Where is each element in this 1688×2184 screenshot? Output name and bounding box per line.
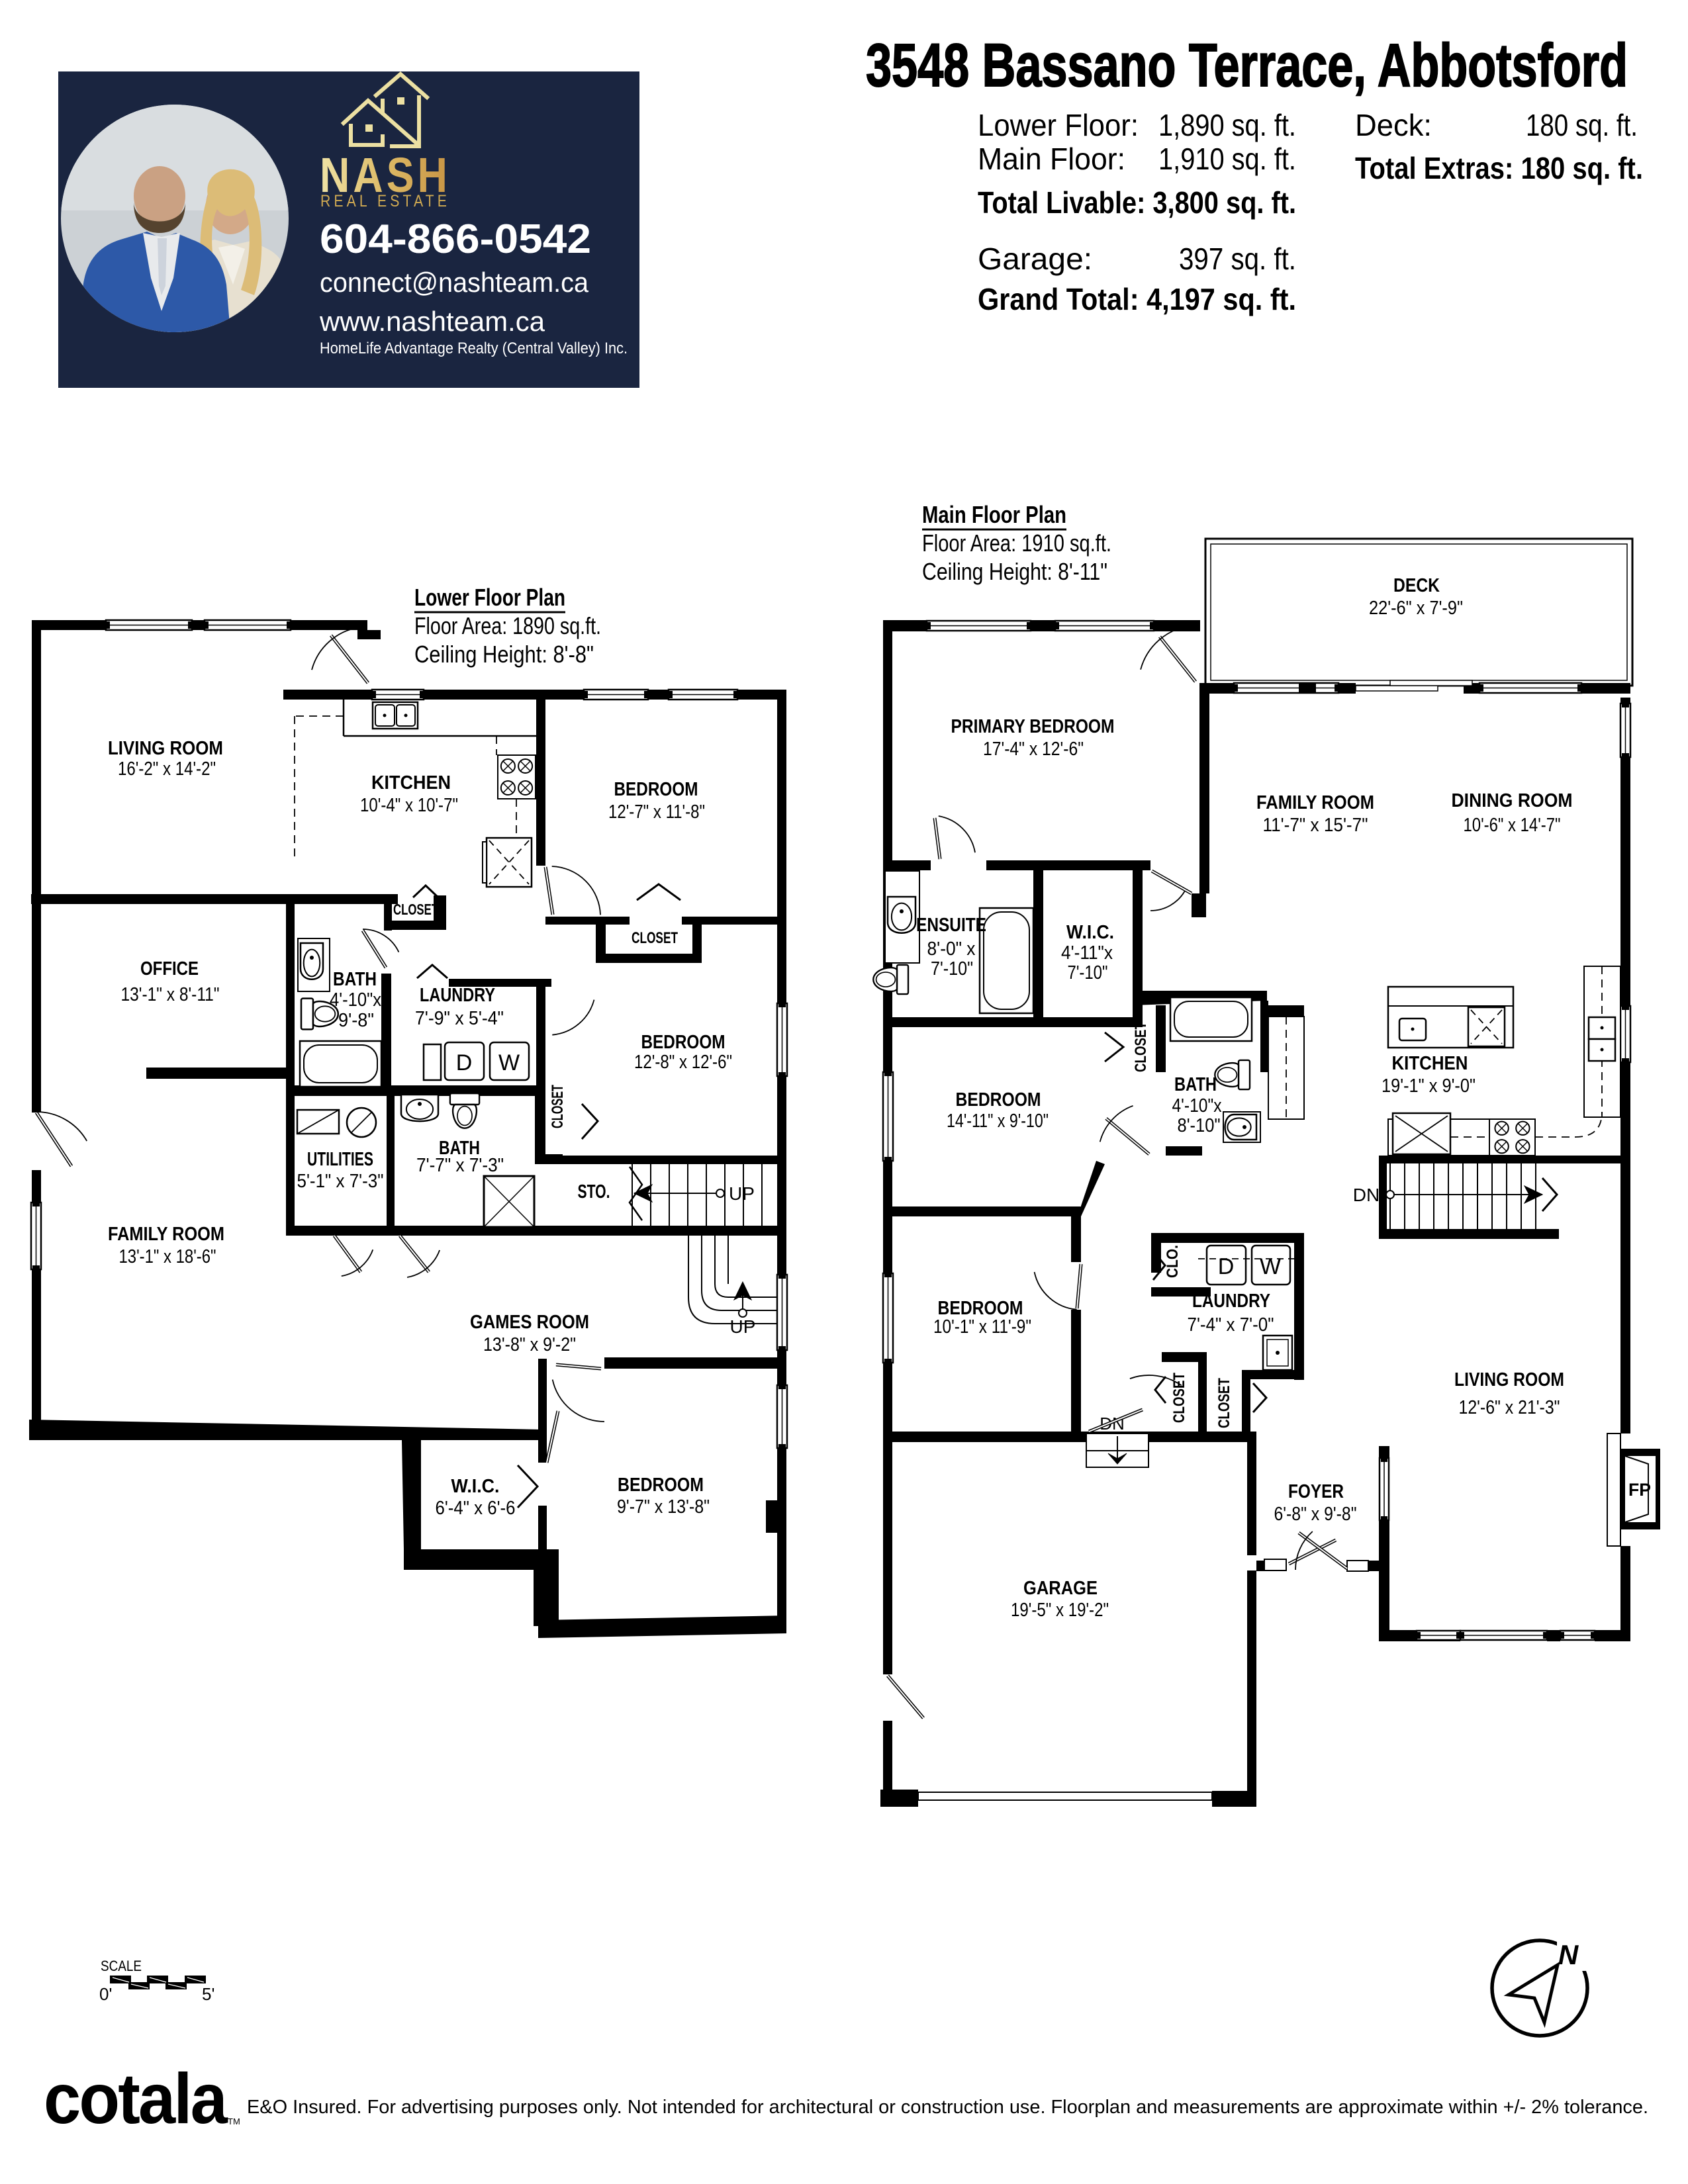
svg-text:Total Extras: 180 sq. ft.: Total Extras: 180 sq. ft. [1355,151,1643,185]
svg-text:7'-9" x 5'-4": 7'-9" x 5'-4" [415,1008,504,1029]
svg-text:FAMILY ROOM: FAMILY ROOM [1256,792,1374,813]
svg-text:Ceiling Height: 8'-11": Ceiling Height: 8'-11" [922,558,1107,585]
svg-text:REAL ESTATE: REAL ESTATE [320,192,450,210]
svg-text:ENSUITE: ENSUITE [916,915,986,936]
svg-text:9'-8": 9'-8" [338,1010,374,1031]
svg-text:Grand Total: 4,197 sq. ft.: Grand Total: 4,197 sq. ft. [978,282,1296,316]
svg-text:6'-4" x 6'-6: 6'-4" x 6'-6 [436,1498,516,1519]
svg-text:OFFICE: OFFICE [140,958,199,979]
svg-text:CLO.: CLO. [1164,1245,1182,1278]
svg-text:13'-8" x 9'-2": 13'-8" x 9'-2" [483,1334,576,1355]
svg-text:CLOSET: CLOSET [1215,1378,1233,1428]
svg-text:BEDROOM: BEDROOM [641,1032,726,1053]
svg-text:4'-11"x: 4'-11"x [1061,942,1113,964]
svg-text:GARAGE: GARAGE [1023,1578,1098,1599]
svg-text:CLOSET: CLOSET [393,901,438,918]
svg-text:8'-0" x: 8'-0" x [927,938,976,960]
svg-text:5': 5' [202,1984,214,2004]
svg-text:16'-2" x 14'-2": 16'-2" x 14'-2" [118,758,216,780]
svg-text:Lower Floor Plan: Lower Floor Plan [414,584,565,611]
svg-text:6'-8" x 9'-8": 6'-8" x 9'-8" [1274,1504,1357,1525]
svg-text:LIVING ROOM: LIVING ROOM [1454,1369,1564,1390]
svg-text:Main Floor:: Main Floor: [978,142,1125,176]
svg-text:connect@nashteam.ca: connect@nashteam.ca [320,267,589,298]
svg-text:W: W [498,1050,520,1075]
svg-text:BEDROOM: BEDROOM [618,1475,704,1496]
svg-text:1,910 sq. ft.: 1,910 sq. ft. [1158,142,1296,176]
svg-text:FOYER: FOYER [1288,1481,1344,1502]
svg-text:FP: FP [1628,1480,1651,1500]
svg-text:TM: TM [228,2116,240,2126]
svg-text:7'-4" x 7'-0": 7'-4" x 7'-0" [1188,1314,1274,1336]
svg-text:8'-10": 8'-10" [1178,1115,1221,1136]
svg-text:5'-1" x 7'-3": 5'-1" x 7'-3" [297,1171,384,1192]
svg-text:CLOSET: CLOSET [1132,1022,1150,1072]
svg-text:12'-6" x 21'-3": 12'-6" x 21'-3" [1459,1397,1560,1418]
svg-text:W.I.C.: W.I.C. [1066,922,1114,943]
svg-text:0': 0' [99,1984,112,2004]
svg-text:HomeLife Advantage Realty (Cen: HomeLife Advantage Realty (Central Valle… [320,340,628,357]
svg-text:www.nashteam.ca: www.nashteam.ca [319,306,545,337]
svg-text:7'-7" x 7'-3": 7'-7" x 7'-3" [416,1155,504,1176]
svg-text:GAMES ROOM: GAMES ROOM [470,1312,589,1333]
svg-text:KITCHEN: KITCHEN [1392,1053,1468,1074]
svg-text:11'-7" x 15'-7": 11'-7" x 15'-7" [1263,815,1368,836]
svg-text:BATH: BATH [333,969,377,990]
svg-text:9'-7" x 13'-8": 9'-7" x 13'-8" [617,1496,710,1518]
svg-text:UTILITIES: UTILITIES [307,1149,373,1170]
svg-text:Floor Area: 1890 sq.ft.: Floor Area: 1890 sq.ft. [414,612,601,639]
svg-text:7'-10": 7'-10" [931,958,973,979]
svg-text:14'-11" x 9'-10": 14'-11" x 9'-10" [947,1111,1049,1132]
svg-text:19'-1" x 9'-0": 19'-1" x 9'-0" [1382,1075,1476,1097]
svg-text:E&O Insured. For advertising p: E&O Insured. For advertising purposes on… [247,2097,1648,2118]
svg-text:1,890 sq. ft.: 1,890 sq. ft. [1158,108,1296,142]
svg-text:DECK: DECK [1393,575,1440,596]
svg-text:13'-1" x 8'-11": 13'-1" x 8'-11" [121,984,220,1005]
svg-text:N: N [1558,1939,1579,1970]
svg-text:3548 Bassano Terrace, Abbotsfo: 3548 Bassano Terrace, Abbotsford [866,32,1628,99]
svg-text:Floor Area: 1910 sq.ft.: Floor Area: 1910 sq.ft. [922,529,1111,557]
svg-text:LIVING ROOM: LIVING ROOM [108,738,223,759]
svg-text:STO.: STO. [578,1181,610,1203]
svg-text:CLOSET: CLOSET [549,1085,567,1128]
svg-text:BATH: BATH [1174,1074,1217,1095]
svg-text:397 sq. ft.: 397 sq. ft. [1179,242,1296,276]
svg-text:W: W [1260,1254,1281,1279]
svg-text:BEDROOM: BEDROOM [956,1089,1041,1111]
svg-text:SCALE: SCALE [101,1958,142,1974]
svg-text:KITCHEN: KITCHEN [371,772,451,794]
svg-text:10'-6" x 14'-7": 10'-6" x 14'-7" [1464,815,1561,836]
svg-text:12'-7" x 11'-8": 12'-7" x 11'-8" [608,801,705,823]
svg-text:180 sq. ft.: 180 sq. ft. [1526,108,1638,142]
svg-text:CLOSET: CLOSET [632,929,678,947]
svg-text:12'-8" x 12'-6": 12'-8" x 12'-6" [634,1052,732,1073]
svg-text:DN: DN [1353,1185,1380,1205]
svg-text:D: D [456,1050,473,1075]
svg-text:D: D [1218,1254,1235,1279]
svg-text:cotala: cotala [44,2058,228,2138]
svg-text:13'-1" x 18'-6": 13'-1" x 18'-6" [119,1246,216,1267]
svg-text:LAUNDRY: LAUNDRY [1192,1291,1270,1312]
svg-text:LAUNDRY: LAUNDRY [420,985,495,1006]
svg-text:19'-5" x 19'-2": 19'-5" x 19'-2" [1011,1600,1109,1621]
svg-text:UP: UP [729,1183,755,1204]
svg-text:10'-4" x 10'-7": 10'-4" x 10'-7" [360,795,458,816]
svg-text:BEDROOM: BEDROOM [614,779,698,800]
svg-text:7'-10": 7'-10" [1068,962,1108,983]
svg-text:PRIMARY BEDROOM: PRIMARY BEDROOM [951,716,1115,737]
svg-text:4'-10"x: 4'-10"x [1172,1095,1222,1116]
svg-text:Total Livable: 3,800 sq. ft.: Total Livable: 3,800 sq. ft. [978,185,1296,220]
svg-text:UP: UP [730,1316,756,1337]
svg-text:DINING ROOM: DINING ROOM [1452,790,1573,811]
svg-text:Deck:: Deck: [1355,108,1432,142]
svg-text:10'-1" x 11'-9": 10'-1" x 11'-9" [933,1316,1031,1338]
svg-text:Main Floor Plan: Main Floor Plan [922,501,1066,528]
svg-text:Garage:: Garage: [978,242,1092,276]
svg-text:22'-6" x 7'-9": 22'-6" x 7'-9" [1369,598,1463,619]
svg-text:W.I.C.: W.I.C. [451,1476,500,1497]
svg-text:FAMILY ROOM: FAMILY ROOM [108,1224,224,1245]
svg-text:4'-10"x: 4'-10"x [330,989,381,1011]
svg-text:Ceiling Height: 8'-8": Ceiling Height: 8'-8" [414,641,594,668]
svg-text:17'-4" x 12'-6": 17'-4" x 12'-6" [983,739,1084,760]
svg-text:604-866-0542: 604-866-0542 [320,216,591,262]
svg-text:Lower Floor:: Lower Floor: [978,108,1139,142]
